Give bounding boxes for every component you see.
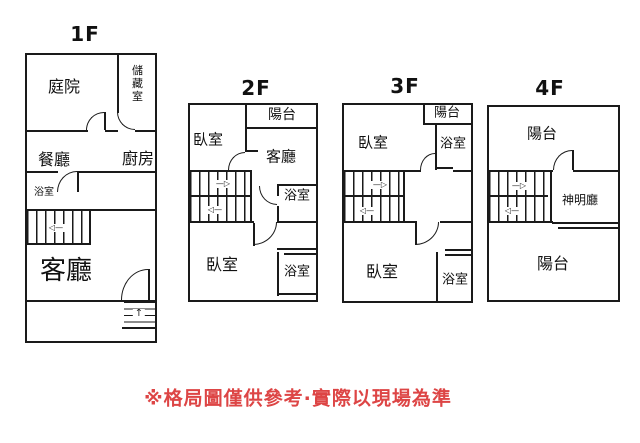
stair-arrow-down-3f: ◁— (358, 207, 376, 215)
room-label-balcony-3f: 陽台 (434, 107, 460, 120)
floorplan-canvas: 1F 2F 3F 4F 庭院 儲藏室 餐廳 廚房 浴室 客廳 ◁— ↑ 陽台 臥… (0, 0, 640, 443)
stair-arrow-up-3f: —▷ (371, 181, 389, 189)
stair-arrow-down-4f: ◁— (503, 207, 521, 215)
room-label-bath-mid-2f: 浴室 (284, 190, 310, 203)
room-label-bath-bottom-2f: 浴室 (284, 266, 310, 279)
room-label-kitchen: 廚房 (122, 151, 154, 167)
room-label-bedroom-bottom-3f: 臥室 (366, 264, 398, 280)
room-label-bedroom-bottom-2f: 臥室 (206, 257, 238, 273)
room-label-courtyard: 庭院 (48, 79, 80, 95)
floor-label-2f: 2F (241, 78, 271, 98)
room-label-balcony-2f: 陽台 (268, 108, 296, 122)
stair-arrow-down-2f: ◁— (206, 206, 224, 214)
room-label-storage: 儲藏室 (132, 65, 143, 104)
floor-label-3f: 3F (390, 76, 420, 96)
room-label-bath-top-3f: 浴室 (440, 138, 466, 151)
entry-steps-arrow-1f: ↑ (133, 309, 145, 319)
room-label-bath-1f: 浴室 (34, 188, 54, 198)
room-label-shrine-4f: 神明廳 (562, 194, 598, 206)
room-label-living-2f: 客廳 (266, 150, 296, 165)
room-label-balcony-top-4f: 陽台 (527, 127, 557, 142)
room-label-dining: 餐廳 (38, 152, 70, 168)
stair-arrow-up-4f: —▷ (510, 182, 528, 190)
stair-arrow-down-1f: ◁— (47, 224, 65, 232)
room-label-bath-bottom-3f: 浴室 (442, 274, 468, 287)
room-label-bedroom-top-3f: 臥室 (358, 136, 388, 151)
floor-label-1f: 1F (70, 24, 100, 44)
room-label-living-1f: 客廳 (40, 258, 92, 284)
stair-arrow-up-2f: —▷ (214, 180, 232, 188)
room-label-bedroom-top-2f: 臥室 (193, 133, 223, 148)
floor-label-4f: 4F (535, 78, 565, 98)
disclaimer-text: ※格局圖僅供參考·實際以現場為準 (144, 384, 452, 411)
room-label-balcony-bottom-4f: 陽台 (537, 256, 569, 272)
